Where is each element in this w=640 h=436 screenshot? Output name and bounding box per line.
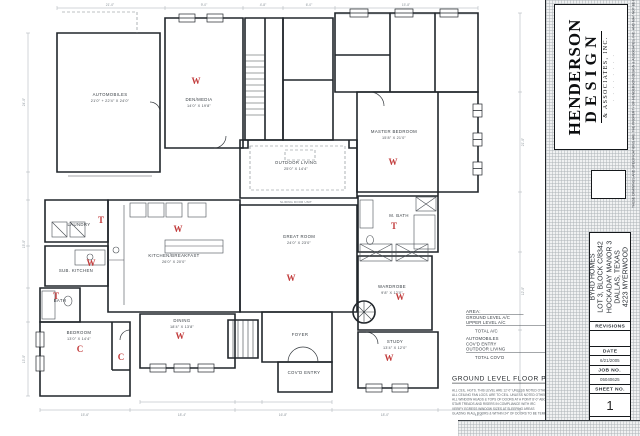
room-label-foyer: FOYER (292, 332, 309, 337)
job-header: JOB NO. (590, 366, 630, 375)
room-label-bedroom: BEDROOM (67, 330, 92, 335)
svg-text:21'0" + 22'4" X 24'0": 21'0" + 22'4" X 24'0" (91, 99, 130, 103)
svg-text:18'4" X 13'8": 18'4" X 13'8" (170, 325, 195, 329)
svg-text:9'-0": 9'-0" (201, 3, 208, 7)
dimension-labels: 21'-0" 9'-0" 4'-8" 6'-0" 15'-8" 24'-0" 1… (22, 3, 525, 417)
svg-text:18'-0": 18'-0" (381, 413, 390, 417)
floor-marker: W (287, 273, 296, 283)
svg-text:24'0" X 23'0": 24'0" X 23'0" (287, 241, 312, 245)
svg-text:6'-0": 6'-0" (306, 3, 313, 7)
project-subdivision: HOCKADAY MANOR 3 (606, 233, 614, 321)
svg-text:13'0" X 14'4": 13'0" X 14'4" (67, 337, 92, 341)
svg-text:24'-0": 24'-0" (22, 97, 26, 106)
room-label-sub-kitchen: SUB. KITCHEN (59, 268, 93, 273)
floor-marker: T (391, 221, 397, 231)
floor-marker: W (174, 224, 183, 234)
checker-border-bottom (458, 420, 640, 436)
room-label-great-room: GREAT ROOM (283, 234, 316, 239)
sheet-header: SHEET NO. (590, 385, 630, 394)
svg-text:25'0" X 14'4": 25'0" X 14'4" (284, 167, 309, 171)
svg-text:26'0" X 20'0": 26'0" X 20'0" (162, 260, 187, 264)
floor-marker: W (176, 331, 185, 341)
svg-text:15'-8": 15'-8" (402, 3, 411, 7)
firm-logo: HENDERSON DESIGN & ASSOCIATES, INC. · · … (554, 4, 628, 150)
svg-text:13'4" X 12'0": 13'4" X 12'0" (383, 346, 408, 350)
floor-marker: W (389, 157, 398, 167)
floor-plan: 21'-0" 9'-0" 4'-8" 6'-0" 15'-8" 24'-0" 1… (0, 0, 545, 436)
firm-name-2: DESIGN (584, 31, 602, 122)
project-lot: LOT 3, BLOCK C/8342 (598, 233, 606, 321)
floor-marker: W (385, 353, 394, 363)
svg-text:15'-6": 15'-6" (81, 413, 90, 417)
floor-marker: W (192, 76, 201, 86)
dimensions-layer (26, 6, 522, 412)
svg-text:12'-0": 12'-0" (521, 286, 525, 295)
date-value: 6/21/2005 (590, 356, 630, 366)
firm-tagline: · · · · · · · · (611, 5, 616, 149)
room-label-covd-entry: COV'D ENTRY (288, 370, 321, 375)
title-block: HENDERSON DESIGN & ASSOCIATES, INC. · · … (545, 0, 640, 436)
date-header: DATE (590, 347, 630, 356)
svg-text:18'-4": 18'-4" (178, 413, 187, 417)
svg-text:16'-8": 16'-8" (279, 413, 288, 417)
svg-text:4'-8": 4'-8" (260, 3, 267, 7)
room-label-kitchen-breakfast: KITCHEN/BREAKFAST (148, 253, 199, 258)
svg-text:13'-0": 13'-0" (22, 354, 26, 363)
sheet-number: 1 (590, 394, 630, 417)
floor-marker: C (118, 352, 125, 362)
revisions-header: REVISIONS (590, 322, 630, 331)
drawing-sheet: 21'-0" 9'-0" 4'-8" 6'-0" 15'-8" 24'-0" 1… (0, 0, 640, 436)
revisions-space (590, 331, 630, 347)
room-label-m-bath: M. BATH (389, 213, 409, 218)
svg-text:21'-0": 21'-0" (106, 3, 115, 7)
room-label-den-media: DEN/MEDIA (185, 97, 212, 102)
project-client: BYRD HOMES (589, 233, 597, 321)
walls-layer (40, 13, 478, 396)
wall-note: SLIDING DOOR UNIT (280, 200, 312, 204)
title-block-column: BYRD HOMES LOT 3, BLOCK C/8342 HOCKADAY … (589, 232, 631, 432)
fixtures-layer (42, 176, 436, 319)
copyright-strip: THESE DRAWINGS AND SPECIFICATIONS ARE TH… (628, 0, 638, 436)
room-label-study: STUDY (387, 339, 403, 344)
floor-marker: W (396, 292, 405, 302)
floor-marker: T (53, 291, 59, 301)
room-label-dining: DINING (173, 318, 190, 323)
svg-text:14'0" X 19'8": 14'0" X 19'8" (187, 104, 212, 108)
room-label-outdoor-living: OUTDOOR LIVING (275, 160, 317, 165)
room-label-laundry: LAUNDRY (68, 222, 91, 227)
svg-text:15'8" X 21'0": 15'8" X 21'0" (382, 136, 407, 140)
svg-text:21'-0": 21'-0" (521, 137, 525, 146)
project-city: DALLAS, TEXAS (614, 233, 622, 321)
svg-text:15'-0": 15'-0" (22, 239, 26, 248)
firm-name-1: HENDERSON (566, 5, 583, 149)
floor-marker: C (77, 344, 84, 354)
room-label-wardrobe: WARDROBE (378, 284, 406, 289)
floor-marker: T (98, 215, 104, 225)
job-value: 05040625 (590, 375, 630, 385)
seal-box (591, 170, 626, 199)
floor-marker: W (87, 258, 96, 268)
room-label-automobiles: AUTOMOBILES (93, 92, 128, 97)
room-label-master-bedroom: MASTER BEDROOM (371, 129, 417, 134)
firm-name-3: & ASSOCIATES, INC. (603, 5, 609, 149)
project-info: BYRD HOMES LOT 3, BLOCK C/8342 HOCKADAY … (590, 233, 630, 322)
